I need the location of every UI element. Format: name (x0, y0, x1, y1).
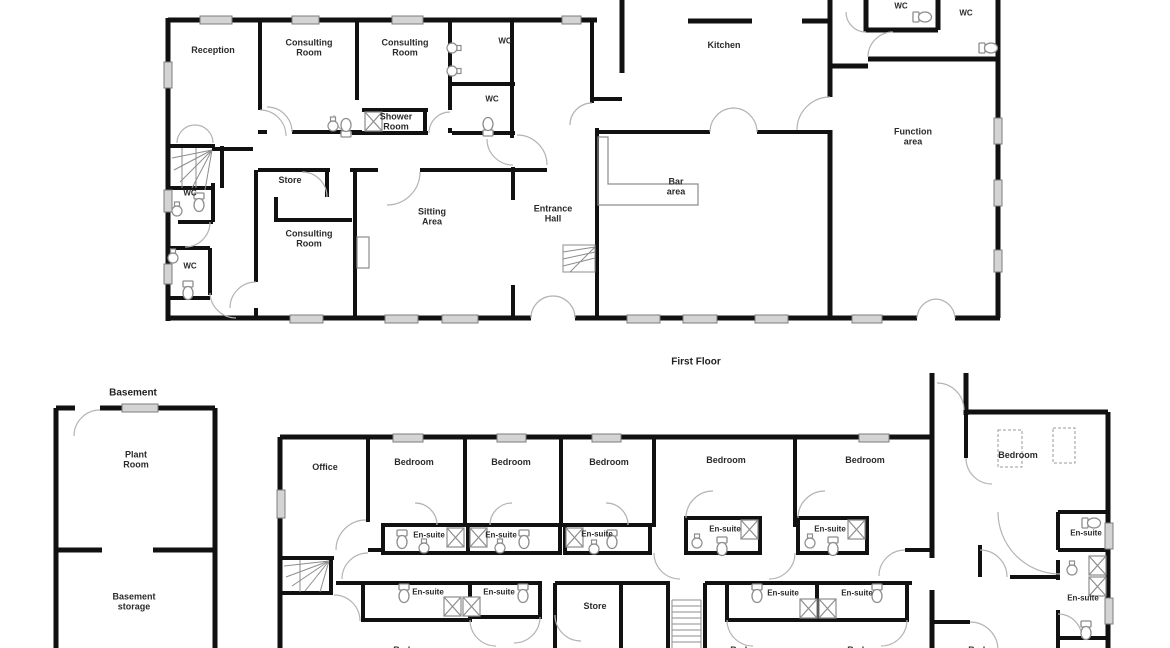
room-label-en-suite: En-suite (483, 587, 515, 596)
room-label-en-suite: En-suite (709, 524, 741, 533)
fireplace (357, 237, 369, 268)
entrance-hall-stairs (563, 245, 595, 272)
room-label-plant-room: Plant Room (116, 450, 156, 471)
room-label-en-suite: En-suite (413, 530, 445, 539)
room-label-wc: WC (485, 94, 498, 103)
room-label-reception: Reception (191, 45, 235, 55)
room-label-bedroom: Bedroom (589, 457, 629, 467)
basement-window (122, 404, 158, 412)
floor-plan-drawing (0, 0, 1170, 648)
basement-door-arc (74, 410, 100, 436)
floor-title-basement: Basement (109, 387, 157, 399)
room-label-consulting-room: Consulting Room (372, 38, 438, 59)
room-label-en-suite: En-suite (841, 588, 873, 597)
ground-floor-outer-walls (280, 373, 1108, 648)
room-label-office: Office (312, 462, 338, 472)
ground-floor-stairs (284, 560, 701, 648)
room-label-en-suite: En-suite (1070, 528, 1102, 537)
room-label-bedroom: Bedroom (845, 455, 885, 465)
room-label-function-area: Function area (888, 127, 938, 148)
room-label-wc: WC (183, 261, 196, 270)
room-label-entrance-hall: Entrance Hall (526, 204, 580, 225)
room-label-wc: WC (183, 188, 196, 197)
room-label-bedroom: Bedroom (706, 455, 746, 465)
room-label-bedroom: Bedroom (394, 457, 434, 467)
room-label-en-suite: En-suite (1067, 593, 1099, 602)
floor-plan-canvas: Reception Consulting Room Consulting Roo… (0, 0, 1170, 648)
reception-stairs (172, 148, 212, 190)
room-label-en-suite: En-suite (581, 529, 613, 538)
room-label-store: Store (278, 175, 301, 185)
room-label-store: Store (583, 601, 606, 611)
room-label-bar-area: Bar area (660, 177, 692, 198)
floor-title-first-floor: First Floor (671, 356, 720, 368)
room-label-wc: WC (959, 8, 972, 17)
ground-floor-plan (277, 373, 1113, 648)
room-label-kitchen: Kitchen (707, 40, 740, 50)
room-label-en-suite: En-suite (485, 530, 517, 539)
first-floor-inner-walls (168, 20, 830, 318)
room-label-basement-storage: Basement storage (103, 592, 165, 613)
room-label-sitting-area: Sitting Area (410, 207, 454, 228)
room-label-wc: WC (498, 36, 511, 45)
room-label-wc: WC (894, 1, 907, 10)
roof-window-dashed-outlines (998, 428, 1075, 467)
room-label-en-suite: En-suite (814, 524, 846, 533)
room-label-consulting-room: Consulting Room (276, 229, 342, 250)
room-label-bedroom: Bedroom (491, 457, 531, 467)
room-label-consulting-room: Consulting Room (276, 38, 342, 59)
room-label-bedroom: Bedroom (998, 450, 1038, 460)
room-label-en-suite: En-suite (767, 588, 799, 597)
room-label-shower-room: Shower Room (371, 112, 421, 133)
room-label-en-suite: En-suite (412, 587, 444, 596)
